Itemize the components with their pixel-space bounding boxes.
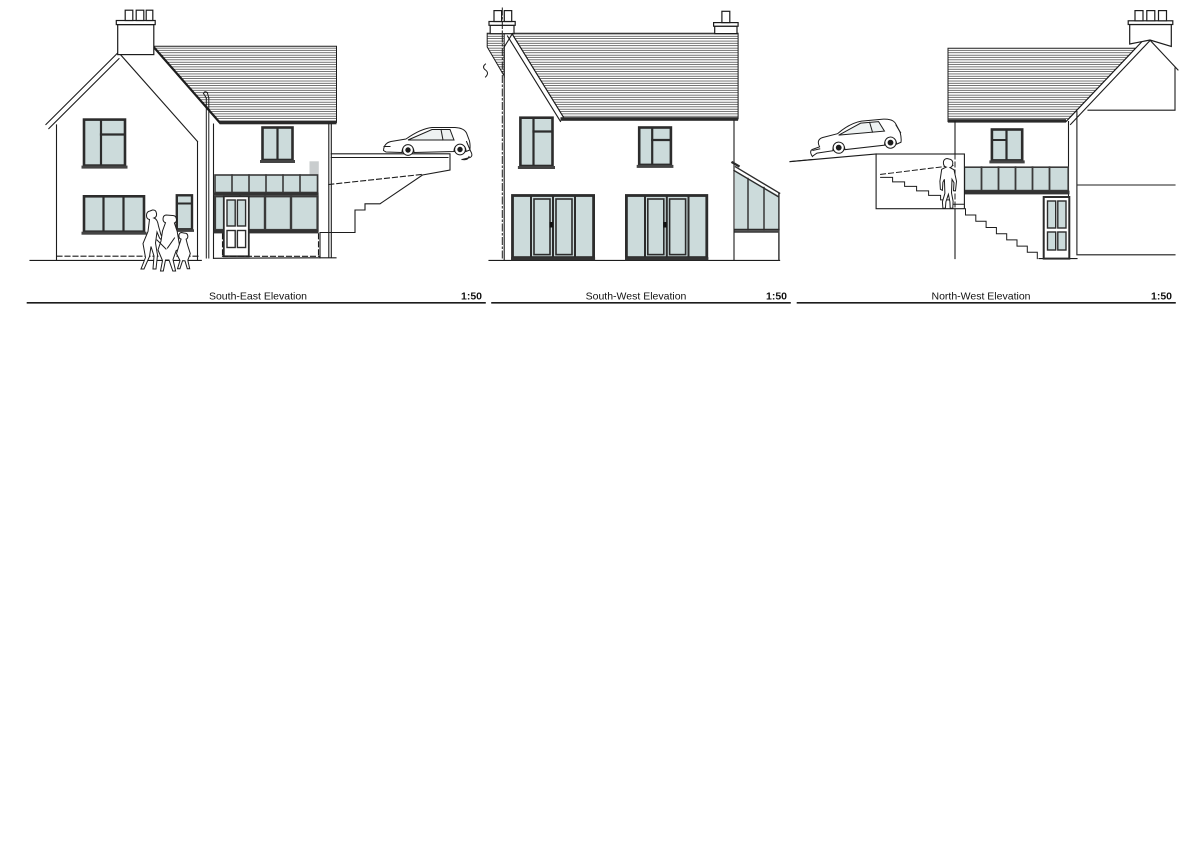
svg-text:South-West Elevation: South-West Elevation [586,291,687,303]
svg-text:North-West Elevation: North-West Elevation [931,291,1030,303]
svg-text:1:50: 1:50 [766,291,787,303]
svg-text:1:50: 1:50 [1151,291,1172,303]
svg-text:South-East Elevation: South-East Elevation [209,291,307,303]
svg-text:1:50: 1:50 [461,291,482,303]
